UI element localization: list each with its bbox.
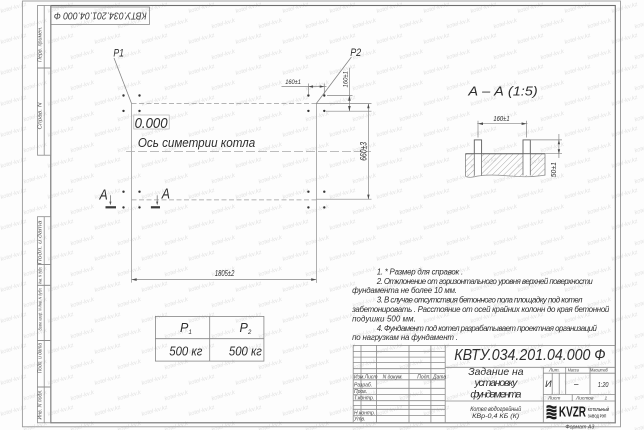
svg-text:0.000: 0.000 (135, 116, 169, 132)
svg-text:Лит.: Лит. (548, 368, 560, 373)
svg-text:Задание на: Задание на (468, 367, 523, 378)
svg-text:4. Фундамент под котел разраба: 4. Фундамент под котел разрабатывает про… (377, 324, 598, 333)
svg-text:установку: установку (473, 378, 518, 389)
svg-text:подушки 500 мм.: подушки 500 мм. (352, 314, 416, 323)
svg-text:Изм.Лист: Изм.Лист (354, 375, 378, 381)
svg-text:160±1: 160±1 (285, 79, 301, 86)
svg-text:Масса: Масса (568, 368, 579, 373)
svg-text:А: А (161, 187, 170, 203)
svg-text:Ось симетрии котла: Ось симетрии котла (138, 136, 255, 150)
svg-text:Справ. N: Справ. N (38, 101, 44, 129)
svg-text:N докум.: N докум. (383, 375, 403, 381)
svg-text:Масштаб: Масштаб (590, 368, 608, 373)
svg-text:по нагрузкам на фундамент .: по нагрузкам на фундамент . (352, 333, 458, 342)
svg-text:фундамента не более 10 мм.: фундамента не более 10 мм. (352, 286, 457, 295)
svg-text:1: 1 (605, 396, 608, 402)
svg-text:50±1: 50±1 (551, 162, 558, 177)
svg-text:–: – (573, 380, 579, 389)
svg-text:3. В случае отсутствия бетонно: 3. В случае отсутствия бетонного пола пл… (377, 296, 583, 305)
svg-text:Подп.: Подп. (417, 375, 430, 381)
svg-text:660±3: 660±3 (358, 142, 368, 161)
svg-text:Утв.: Утв. (354, 417, 365, 423)
svg-text:Инв. N дубл.: Инв. N дубл. (38, 267, 43, 285)
svg-text:КВТУ.034.201.04.000 Ф: КВТУ.034.201.04.000 Ф (454, 347, 605, 364)
svg-text:Листов: Листов (575, 396, 594, 402)
svg-text:КВТУ.034.201.04.000 Ф: КВТУ.034.201.04.000 Ф (54, 9, 147, 21)
svg-text:ЗАВОД РЭП: ЗАВОД РЭП (588, 413, 607, 418)
svg-text:500 кг: 500 кг (229, 344, 262, 359)
svg-text:Т.контр.: Т.контр. (354, 396, 374, 402)
svg-text:КВр-0,4 КБ (К): КВр-0,4 КБ (К) (472, 413, 519, 420)
svg-text:Разраб.: Разраб. (354, 383, 372, 389)
svg-text:160±1: 160±1 (343, 71, 350, 88)
svg-text:P1: P1 (113, 48, 124, 60)
svg-text:И: И (545, 379, 552, 389)
svg-text:1: 1 (189, 330, 192, 336)
svg-text:Пров.: Пров. (354, 389, 367, 395)
svg-text:Н.контр.: Н.контр. (354, 410, 375, 416)
svg-text:Подп. и дата: Подп. и дата (38, 221, 44, 265)
svg-text:фундамента: фундамента (470, 388, 521, 400)
svg-text:2: 2 (247, 330, 252, 336)
svg-text:Инв. N подл.: Инв. N подл. (38, 389, 44, 419)
svg-text:2. Отклонение от горизонтально: 2. Отклонение от горизонтального уровня … (376, 277, 594, 286)
svg-text:1:20: 1:20 (598, 380, 609, 389)
svg-text:KVZR: KVZR (559, 404, 586, 421)
svg-text:А: А (99, 187, 108, 203)
svg-text:P2: P2 (350, 47, 362, 59)
svg-text:А – А (1:5): А – А (1:5) (467, 84, 537, 99)
svg-text:Котел водогрейный: Котел водогрейный (470, 405, 521, 413)
svg-text:Формат А3: Формат А3 (565, 425, 595, 430)
svg-text:1805±2: 1805±2 (215, 269, 235, 278)
svg-text:Перв. примен.: Перв. примен. (38, 26, 44, 62)
svg-text:1. * Размер для справок .: 1. * Размер для справок . (377, 267, 464, 276)
svg-text:Взам. шиф. N Инв. N дубл.: Взам. шиф. N Инв. N дубл. (38, 288, 43, 331)
svg-text:Дата: Дата (432, 375, 446, 381)
svg-text:КОТЕЛЬНЫЙ: КОТЕЛЬНЫЙ (588, 407, 609, 412)
svg-text:забетонировать . Расстояние от: забетонировать . Расстояние от осей край… (351, 305, 610, 314)
svg-text:160±1: 160±1 (493, 116, 509, 123)
svg-text:500 кг: 500 кг (169, 344, 202, 359)
svg-text:Подп. и дата: Подп. и дата (38, 343, 44, 373)
svg-text:Лист: Лист (547, 396, 560, 402)
